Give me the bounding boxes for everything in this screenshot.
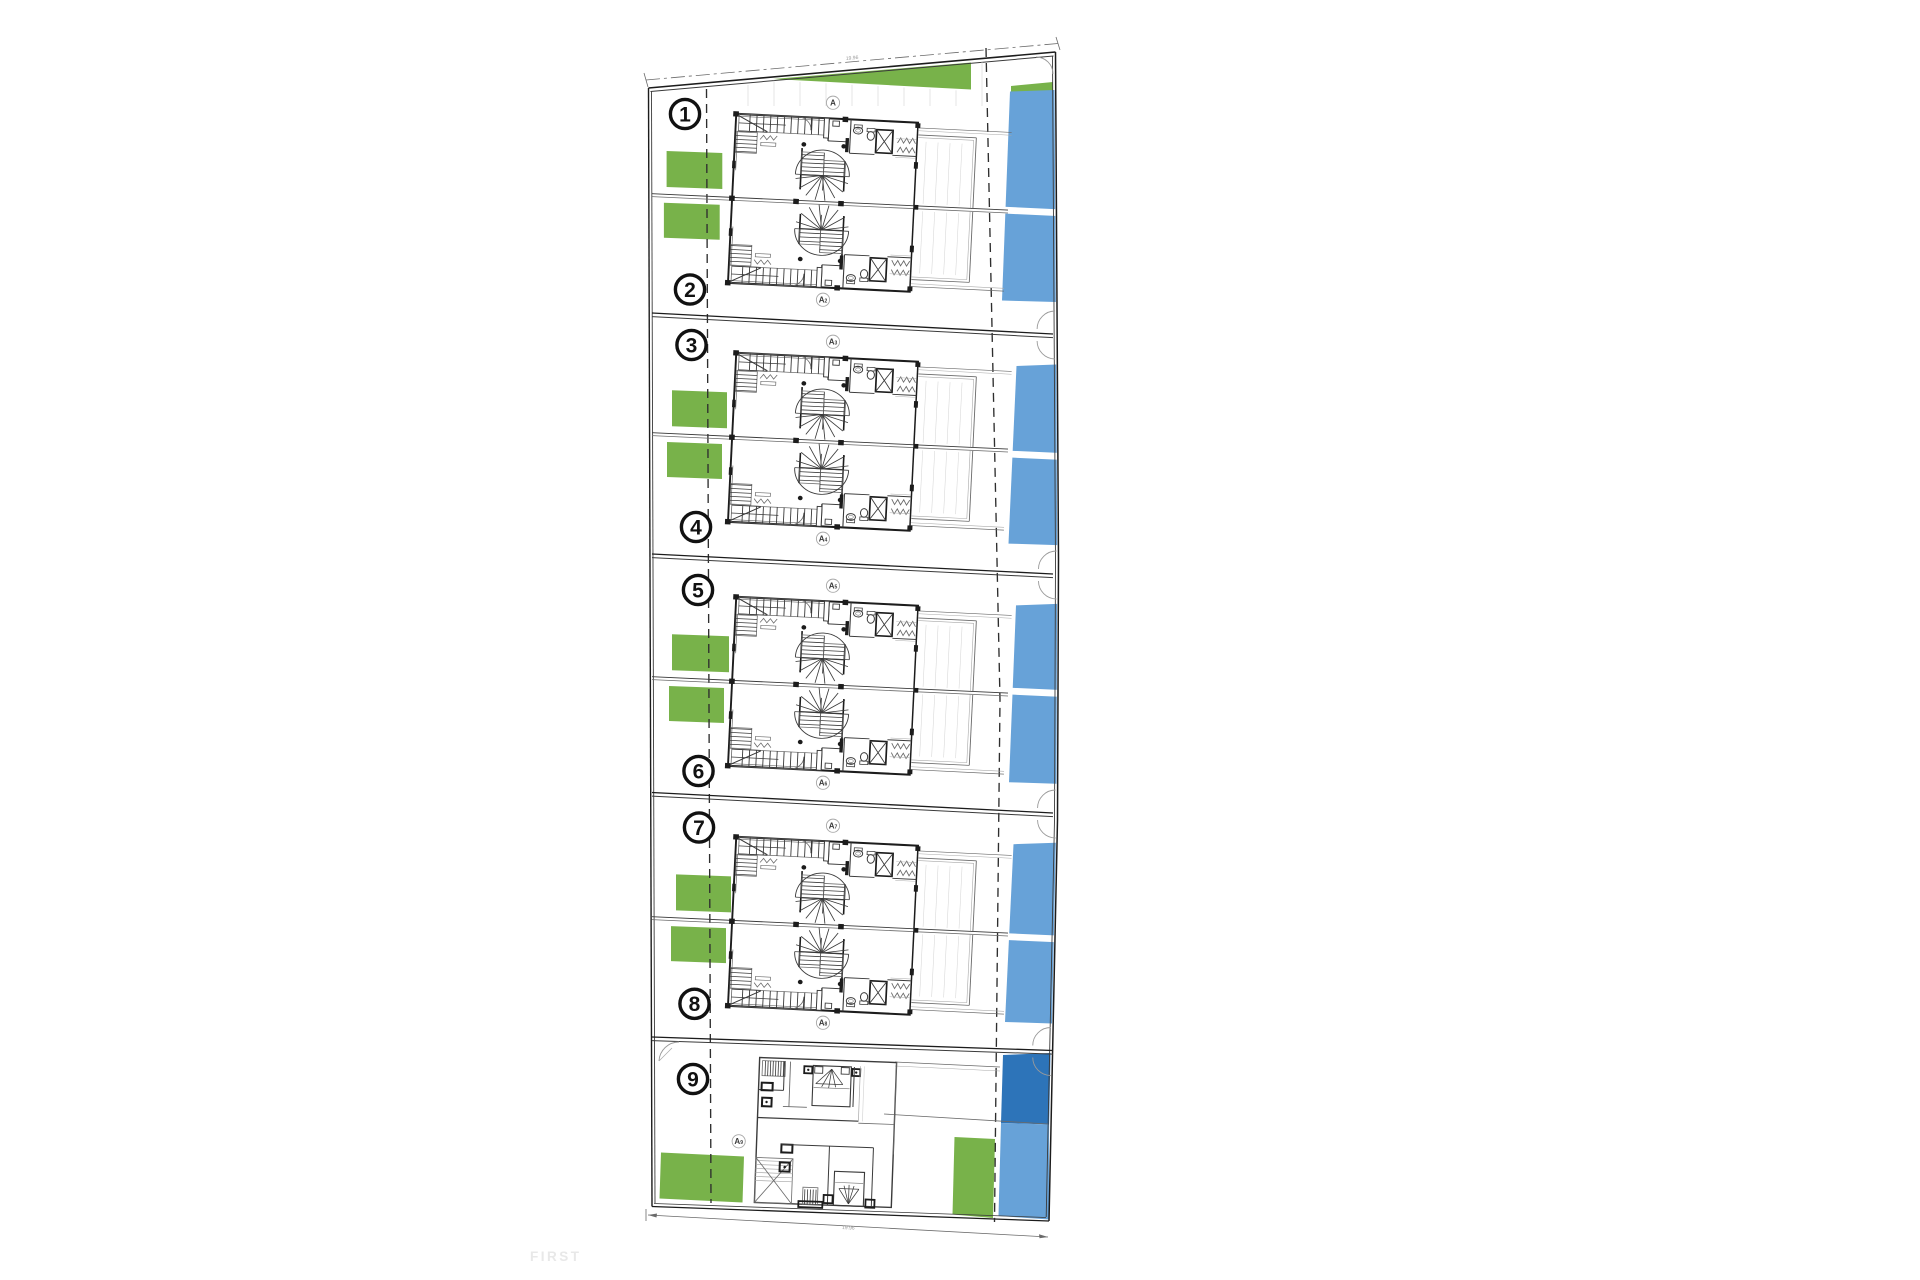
svg-text:8: 8 [689, 993, 701, 1016]
svg-text:2: 2 [684, 279, 696, 302]
svg-text:6: 6 [693, 760, 705, 783]
svg-text:9: 9 [687, 1068, 699, 1091]
svg-text:19.96: 19.96 [842, 1225, 855, 1232]
svg-text:A: A [830, 99, 836, 108]
svg-text:5: 5 [692, 579, 704, 602]
svg-text:19.96: 19.96 [846, 55, 859, 62]
svg-text:1: 1 [679, 103, 691, 126]
svg-text:3: 3 [686, 334, 698, 357]
svg-text:FIRST: FIRST [530, 1249, 582, 1264]
svg-text:4: 4 [690, 516, 702, 539]
svg-text:7: 7 [693, 817, 705, 840]
